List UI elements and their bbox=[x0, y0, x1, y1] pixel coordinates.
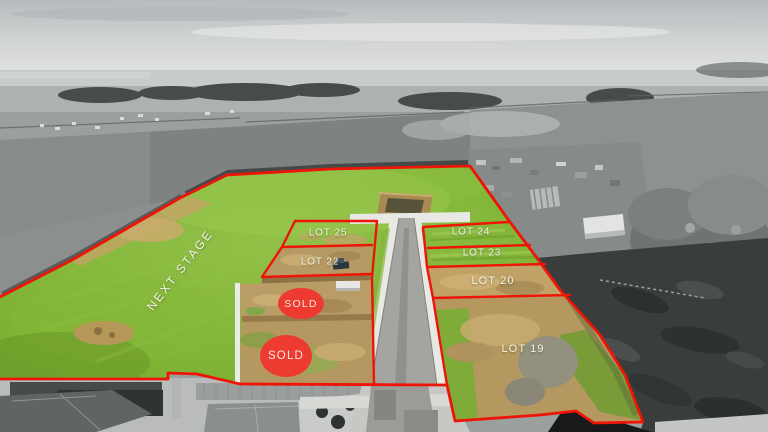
lot-24-label: LOT 24 bbox=[452, 227, 491, 238]
lot-25-label: LOT 25 bbox=[309, 228, 348, 239]
lot-23-label: LOT 23 bbox=[463, 248, 502, 259]
sold-badge: SOLD bbox=[260, 335, 312, 377]
scene-canvas bbox=[0, 0, 768, 432]
dirt-pile bbox=[74, 321, 134, 345]
white-fence bbox=[235, 283, 240, 385]
white-barn bbox=[583, 214, 625, 239]
sold-badge: SOLD bbox=[278, 288, 324, 319]
lot-19-label: LOT 19 bbox=[501, 343, 544, 355]
aerial-subdivision-photo: NEXT STAGE LOT 25 LOT 22 LOT 24 LOT 23 L… bbox=[0, 0, 768, 432]
striped-roof-shed bbox=[530, 186, 561, 210]
lot-22-label: LOT 22 bbox=[301, 257, 340, 268]
lot-20-label: LOT 20 bbox=[471, 275, 514, 287]
